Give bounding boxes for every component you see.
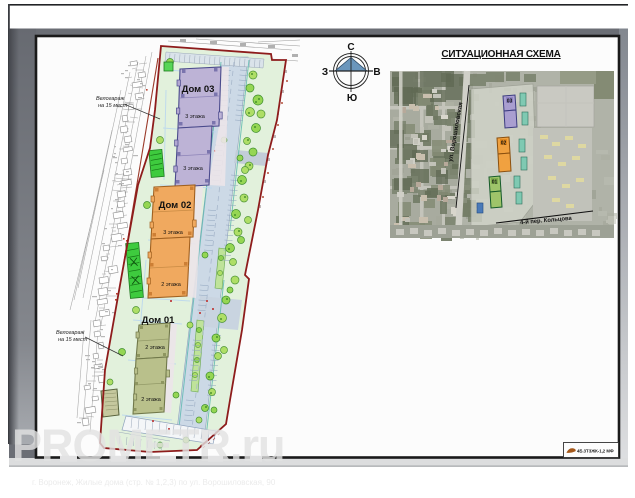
svg-text:Велогараж: Велогараж [96, 96, 125, 102]
svg-text:2 этажа: 2 этажа [141, 397, 161, 403]
svg-text:Дом 02: Дом 02 [159, 200, 192, 211]
svg-text:3 этажа: 3 этажа [183, 166, 203, 172]
svg-text:2 этажа: 2 этажа [161, 282, 181, 288]
svg-text:Ю: Ю [347, 93, 357, 104]
svg-text:на 15 мест: на 15 мест [58, 337, 88, 343]
svg-text:Дом 01: Дом 01 [142, 315, 176, 326]
svg-text:на 15 мест: на 15 мест [98, 103, 128, 109]
svg-text:3 этажа: 3 этажа [185, 114, 205, 120]
svg-text:02: 02 [501, 141, 507, 147]
svg-text:СИТУАЦИОННАЯ СХЕМА: СИТУАЦИОННАЯ СХЕМА [441, 49, 560, 60]
svg-text:В: В [373, 67, 380, 78]
svg-text:З: З [322, 67, 328, 78]
svg-text:Дом 03: Дом 03 [182, 84, 215, 95]
svg-text:г. Воронеж, Жилые дома (стр. №: г. Воронеж, Жилые дома (стр. № 1,2,3) по… [32, 478, 276, 487]
svg-text:Велогараж: Велогараж [56, 330, 85, 336]
svg-text:03: 03 [507, 99, 513, 105]
svg-text:С: С [347, 42, 354, 53]
svg-text:PROMETR.ru: PROMETR.ru [12, 420, 285, 471]
svg-text:3 этажа: 3 этажа [163, 230, 183, 236]
svg-text:4Б.3ТЗЖК-1,2 МФ: 4Б.3ТЗЖК-1,2 МФ [577, 449, 614, 454]
svg-text:01: 01 [492, 180, 498, 186]
svg-text:2 этажа: 2 этажа [145, 345, 165, 351]
